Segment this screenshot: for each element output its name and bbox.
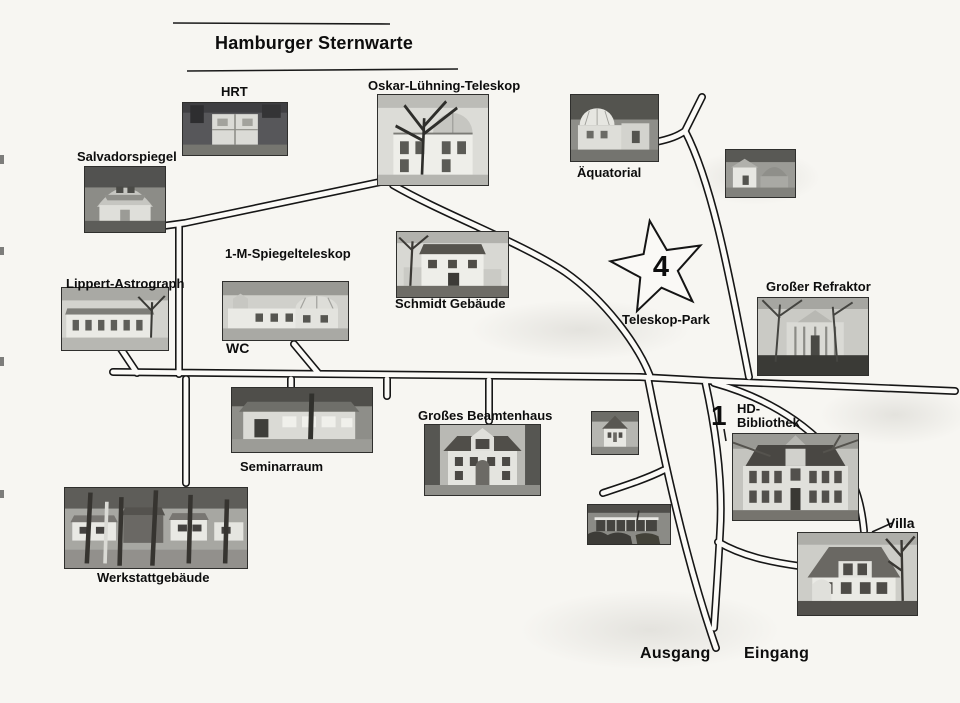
grosser-refraktor-photo (758, 298, 868, 375)
hd-bibliothek-label-line2: Bibliothek (737, 416, 800, 430)
hd-bibliothek-label-line1: HD- (737, 402, 800, 416)
scan-edge-mark (0, 247, 4, 255)
grosses-beamtenhaus-photo (425, 425, 540, 495)
hd-bibliothek-label: HD- Bibliothek (737, 402, 800, 430)
villa-label: Villa (886, 515, 915, 531)
teleskop-park-label: Teleskop-Park (622, 312, 710, 327)
grosser-refraktor-label: Großer Refraktor (766, 279, 871, 294)
villa-photo (798, 533, 917, 615)
schmidt-gebaeude-label: Schmidt Gebäude (395, 296, 506, 311)
spiegelteleskop-1m-photo (223, 282, 348, 340)
scan-edge-mark (0, 155, 4, 164)
map-title: Hamburger Sternwarte (215, 33, 413, 54)
small-observatory-photo (726, 150, 795, 197)
lippert-astrograph-photo (62, 288, 168, 350)
werkstattgebaeude-photo (65, 488, 247, 568)
lippert-astrograph-label: Lippert-Astrograph (66, 276, 184, 291)
seminarraum-label: Seminarraum (240, 459, 323, 474)
scan-edge-mark (0, 357, 4, 366)
hd-bibliothek-photo (733, 434, 858, 520)
modern-building-photo (588, 505, 670, 544)
oskar-luehning-teleskop-label: Oskar-Lühning-Teleskop (368, 78, 520, 93)
exit-label: Ausgang (640, 645, 711, 663)
wc-label: WC (226, 340, 249, 356)
site-map: Hamburger Sternwarte HRT Salvadorspiegel… (0, 0, 960, 703)
grosses-beamtenhaus-label: Großes Beamtenhaus (418, 408, 552, 423)
salvadorspiegel-photo (85, 167, 165, 232)
scan-edge-mark (0, 490, 4, 498)
schmidt-gebaeude-photo (397, 232, 508, 297)
hd-bibliothek-number: 1 (711, 402, 727, 430)
aequatorial-label: Äquatorial (577, 165, 641, 180)
aequatorial-photo (571, 95, 658, 161)
oskar-luehning-teleskop-photo (378, 95, 488, 185)
hrt-label: HRT (221, 84, 248, 99)
spiegelteleskop-1m-label: 1-M-Spiegelteleskop (225, 246, 351, 261)
small-house-photo (592, 412, 638, 454)
entrance-label: Eingang (744, 645, 809, 663)
teleskop-park-number: 4 (646, 253, 676, 282)
werkstattgebaeude-label: Werkstattgebäude (97, 570, 209, 585)
hrt-photo (183, 103, 287, 155)
seminarraum-photo (232, 388, 372, 452)
salvadorspiegel-label: Salvadorspiegel (77, 149, 177, 164)
